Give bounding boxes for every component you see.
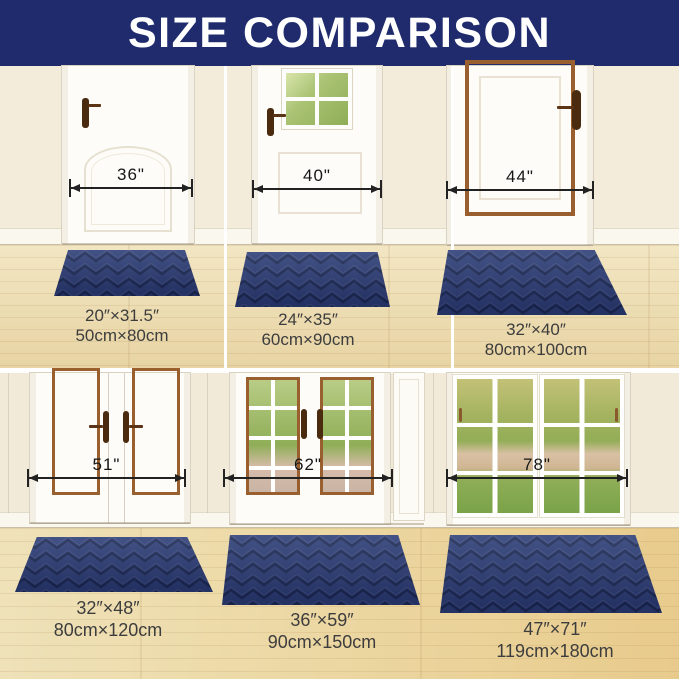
- arrow-left-icon: [29, 474, 38, 482]
- door-handle: [82, 98, 89, 128]
- dimension-line: [447, 189, 593, 191]
- door-handle-lever: [88, 104, 101, 107]
- door-handle-lever: [273, 114, 286, 117]
- doormat-24x35: [235, 252, 390, 307]
- door-sidelight: [394, 373, 424, 520]
- door-handle-lever: [89, 425, 103, 428]
- mat-size-label: 24″×35″ 60cm×90cm: [218, 310, 398, 350]
- arrow-left-icon: [254, 185, 263, 193]
- dimension-62: 62": [224, 456, 392, 479]
- door-width-label: 40": [253, 167, 381, 185]
- arrow-right-icon: [583, 186, 592, 194]
- mat-size-inches: 36″×59″: [232, 609, 412, 631]
- door-threshold: [447, 244, 593, 246]
- mat-pattern: [15, 537, 213, 592]
- door-width-label: 62": [224, 456, 392, 474]
- arrow-right-icon: [182, 184, 191, 192]
- dimension-36: 36": [70, 166, 192, 189]
- mat-size-cm: 119cm×180cm: [465, 640, 645, 662]
- mat-size-label: 32″×40″ 80cm×100cm: [446, 320, 626, 360]
- arrow-right-icon: [371, 185, 380, 193]
- patio-door-glass: [540, 375, 624, 517]
- door-threshold: [30, 522, 190, 524]
- door-handle: [267, 108, 274, 136]
- door-44-inch: [447, 66, 593, 245]
- door-threshold: [230, 523, 424, 525]
- door-window: [282, 69, 352, 129]
- dimension-line: [447, 477, 627, 479]
- mat-pattern: [440, 535, 662, 613]
- door-36-inch: [62, 66, 194, 244]
- arrow-right-icon: [382, 474, 391, 482]
- arrow-left-icon: [448, 474, 457, 482]
- door-width-label: 44": [447, 168, 593, 186]
- door-78-inch: [447, 373, 630, 525]
- arrow-right-icon: [617, 474, 626, 482]
- doormat-20x31: [54, 250, 200, 296]
- dimension-line: [253, 188, 381, 190]
- mat-size-inches: 32″×40″: [446, 320, 626, 340]
- dimension-tick: [592, 181, 594, 199]
- dimension-tick: [184, 469, 186, 487]
- dimension-line: [28, 477, 185, 479]
- door-width-label: 36": [70, 166, 192, 184]
- doormat-32x40: [437, 250, 627, 315]
- mat-pattern: [54, 250, 200, 296]
- mat-size-inches: 47″×71″: [465, 618, 645, 640]
- title-banner: SIZE COMPARISON: [0, 0, 679, 66]
- dimension-tick: [380, 180, 382, 198]
- dimension-tick: [191, 179, 193, 197]
- wall-panel-line: [207, 373, 208, 513]
- mat-pattern: [235, 252, 390, 307]
- mat-pattern: [437, 250, 627, 315]
- dimension-tick: [391, 469, 393, 487]
- dimension-44: 44": [447, 168, 593, 191]
- door-seam: [108, 373, 109, 523]
- door-threshold: [252, 243, 382, 245]
- door-62-inch: [230, 373, 390, 524]
- mat-size-label: 20″×31.5″ 50cm×80cm: [32, 306, 212, 346]
- arrow-right-icon: [175, 474, 184, 482]
- mat-pattern: [222, 535, 420, 605]
- dimension-40: 40": [253, 167, 381, 190]
- door-handle: [103, 411, 109, 443]
- wall-panel-line: [8, 373, 9, 513]
- dimension-51: 51": [28, 456, 185, 479]
- door-width-label: 78": [447, 456, 627, 474]
- arrow-left-icon: [448, 186, 457, 194]
- door-51-inch: [30, 373, 190, 523]
- arrow-left-icon: [71, 184, 80, 192]
- door-seam: [124, 373, 125, 523]
- mat-size-inches: 24″×35″: [218, 310, 398, 330]
- doormat-47x71: [440, 535, 662, 613]
- doormat-36x59: [222, 535, 420, 605]
- mat-size-cm: 50cm×80cm: [32, 326, 212, 346]
- dimension-tick: [626, 469, 628, 487]
- arrow-left-icon: [225, 474, 234, 482]
- door-handle: [572, 90, 581, 130]
- mat-size-cm: 80cm×100cm: [446, 340, 626, 360]
- mat-size-inches: 20″×31.5″: [32, 306, 212, 326]
- door-arch-panel: [84, 146, 172, 232]
- page-title: SIZE COMPARISON: [128, 9, 551, 58]
- door-handle-lever: [557, 106, 574, 109]
- door-handle-lever: [129, 425, 143, 428]
- mat-size-cm: 90cm×150cm: [232, 631, 412, 653]
- patio-door-glass: [453, 375, 537, 517]
- door-handle: [459, 408, 462, 422]
- mat-size-inches: 32″×48″: [18, 597, 198, 619]
- mat-size-label: 32″×48″ 80cm×120cm: [18, 597, 198, 641]
- wall-panel-line: [433, 373, 434, 513]
- door-threshold: [447, 524, 630, 526]
- dimension-line: [224, 477, 392, 479]
- mat-size-cm: 60cm×90cm: [218, 330, 398, 350]
- door-handle: [317, 409, 323, 439]
- dimension-78: 78": [447, 456, 627, 479]
- door-handle: [301, 409, 307, 439]
- mat-size-cm: 80cm×120cm: [18, 619, 198, 641]
- size-comparison-image: SIZE COMPARISON 36": [0, 0, 679, 679]
- door-handle: [615, 408, 618, 422]
- mat-size-label: 47″×71″ 119cm×180cm: [465, 618, 645, 662]
- door-width-label: 51": [28, 456, 185, 474]
- door-threshold: [62, 243, 194, 245]
- mat-size-label: 36″×59″ 90cm×150cm: [232, 609, 412, 653]
- doormat-32x48: [15, 537, 213, 592]
- door-40-inch: [252, 66, 382, 244]
- dimension-line: [70, 187, 192, 189]
